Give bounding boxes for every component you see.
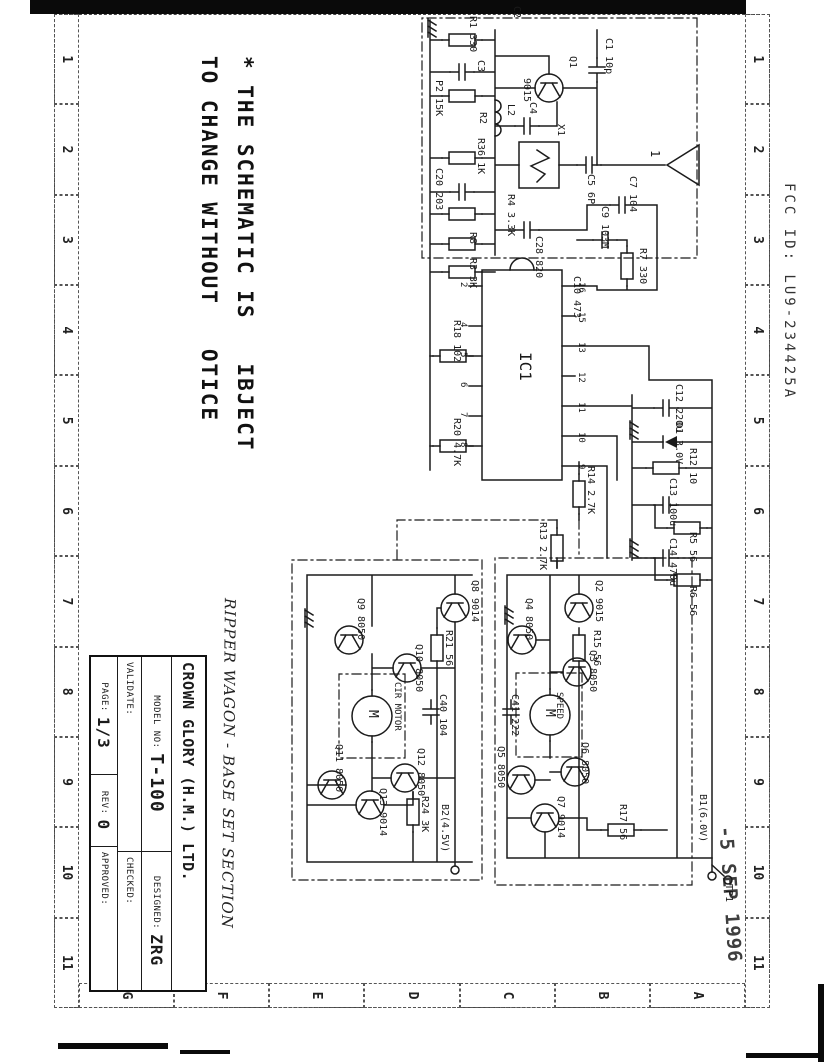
component-label: R3 3K [467,258,477,288]
component-label: 12 [576,372,585,383]
component-label: Q11 8050 [333,744,343,792]
component-label: C14 470u [667,538,677,586]
component-label: 5 [458,352,467,357]
component-label: R2 [477,112,487,124]
page-label: PAGE: [99,682,109,712]
component-label: Q3 8050 [587,650,597,692]
component-label: R8 [467,232,477,244]
component-label: C1 10p [603,38,613,74]
component-label: Q13 9014 [377,788,387,836]
component-label: 2 [458,282,467,287]
component-label: R6 56 [687,586,697,616]
component-label: C28 820 [533,236,543,278]
component-label: B2(4.5V) [439,804,449,852]
designed-label: DESIGNED: [152,876,162,929]
component-label: R14 2.7K [585,466,595,514]
title-block: CROWN GLORY (H.M.) LTD. MODEL NO: T-100 … [89,655,207,992]
component-label: TP1 [723,884,733,902]
landscape-sheet: FCC ID: LU9-234425A 11223344556677889910… [0,0,827,1062]
component-label: Q12 8050 [415,748,425,796]
component-label: C3 [475,60,485,72]
component-label: X1 [555,124,565,136]
component-label: IC1 [517,352,533,381]
component-label: C41 222 [509,694,519,736]
approved-label: APPROVED: [99,852,109,985]
component-label: Q7 9014 [555,796,565,838]
component-label: 8 [458,442,467,447]
component-label: Q6 8050 [579,742,589,784]
component-label: 6 [458,382,467,387]
component-label: Q2 9015 [593,580,603,622]
component-label: Q10 8050 [413,644,423,692]
component-label: Q5 8050 [495,746,505,788]
component-label: M [543,709,556,717]
component-label: 9015 [521,78,531,102]
component-label: R36 1K [475,138,485,174]
company-name: CROWN GLORY (H.M.) LTD. [180,662,198,881]
component-label: C40 104 [437,694,447,736]
component-label: R7 330 [637,248,647,284]
component-label: Q8 9014 [469,580,479,622]
component-label: 13 [576,342,585,353]
component-label: C2 [511,6,521,18]
component-label: 1 [649,150,661,157]
component-label: R1 330 [467,16,477,52]
validate-label: VALIDATE: [125,662,135,846]
component-label: R21 56 [443,630,453,666]
component-label: Q4 8050 [523,598,533,640]
rev-label: REV: [99,791,109,815]
rev-value: 0 [95,820,114,831]
component-label: C13 100u [667,478,677,526]
page-value: 1/3 [95,717,114,749]
checked-label: CHECKED: [125,857,135,985]
component-label: R13 2.7K [537,522,547,570]
designed-value: ZRG [147,934,166,966]
component-label: CIR MOTOR [392,682,401,731]
component-label: C5 6P [585,174,595,204]
component-label: C4 [527,102,537,114]
component-label: 15 [576,312,585,323]
component-label: 11 [576,402,585,413]
component-label: R17 56 [617,804,627,840]
component-label: 7 [458,412,467,417]
scanned-schematic-page: FCC ID: LU9-234425A 11223344556677889910… [0,0,827,1062]
component-label: Q1 [567,56,577,68]
model-label: MODEL NO: [152,695,162,748]
component-label: 4 [458,322,467,327]
component-label: R4 3.3K [505,194,515,236]
component-label: D1 3.0V [673,422,683,464]
model-value: T-100 [146,754,167,813]
component-label: R5 56 [687,532,697,562]
component-label: P2 15K [433,80,443,116]
component-label: R12 10 [687,448,697,484]
component-label: M [366,710,379,718]
component-label: L2 [505,104,515,116]
component-label: C20 203 [433,168,443,210]
component-label: R24 3K [419,796,429,832]
component-label: Q9 8050 [355,598,365,640]
component-label: 16 [576,282,585,293]
component-label: 9 [576,464,585,469]
component-label: C9 103M [599,206,609,248]
component-label: C7 104 [627,176,637,212]
component-label: 10 [576,432,585,443]
component-label: B1(6.0V) [697,794,707,842]
